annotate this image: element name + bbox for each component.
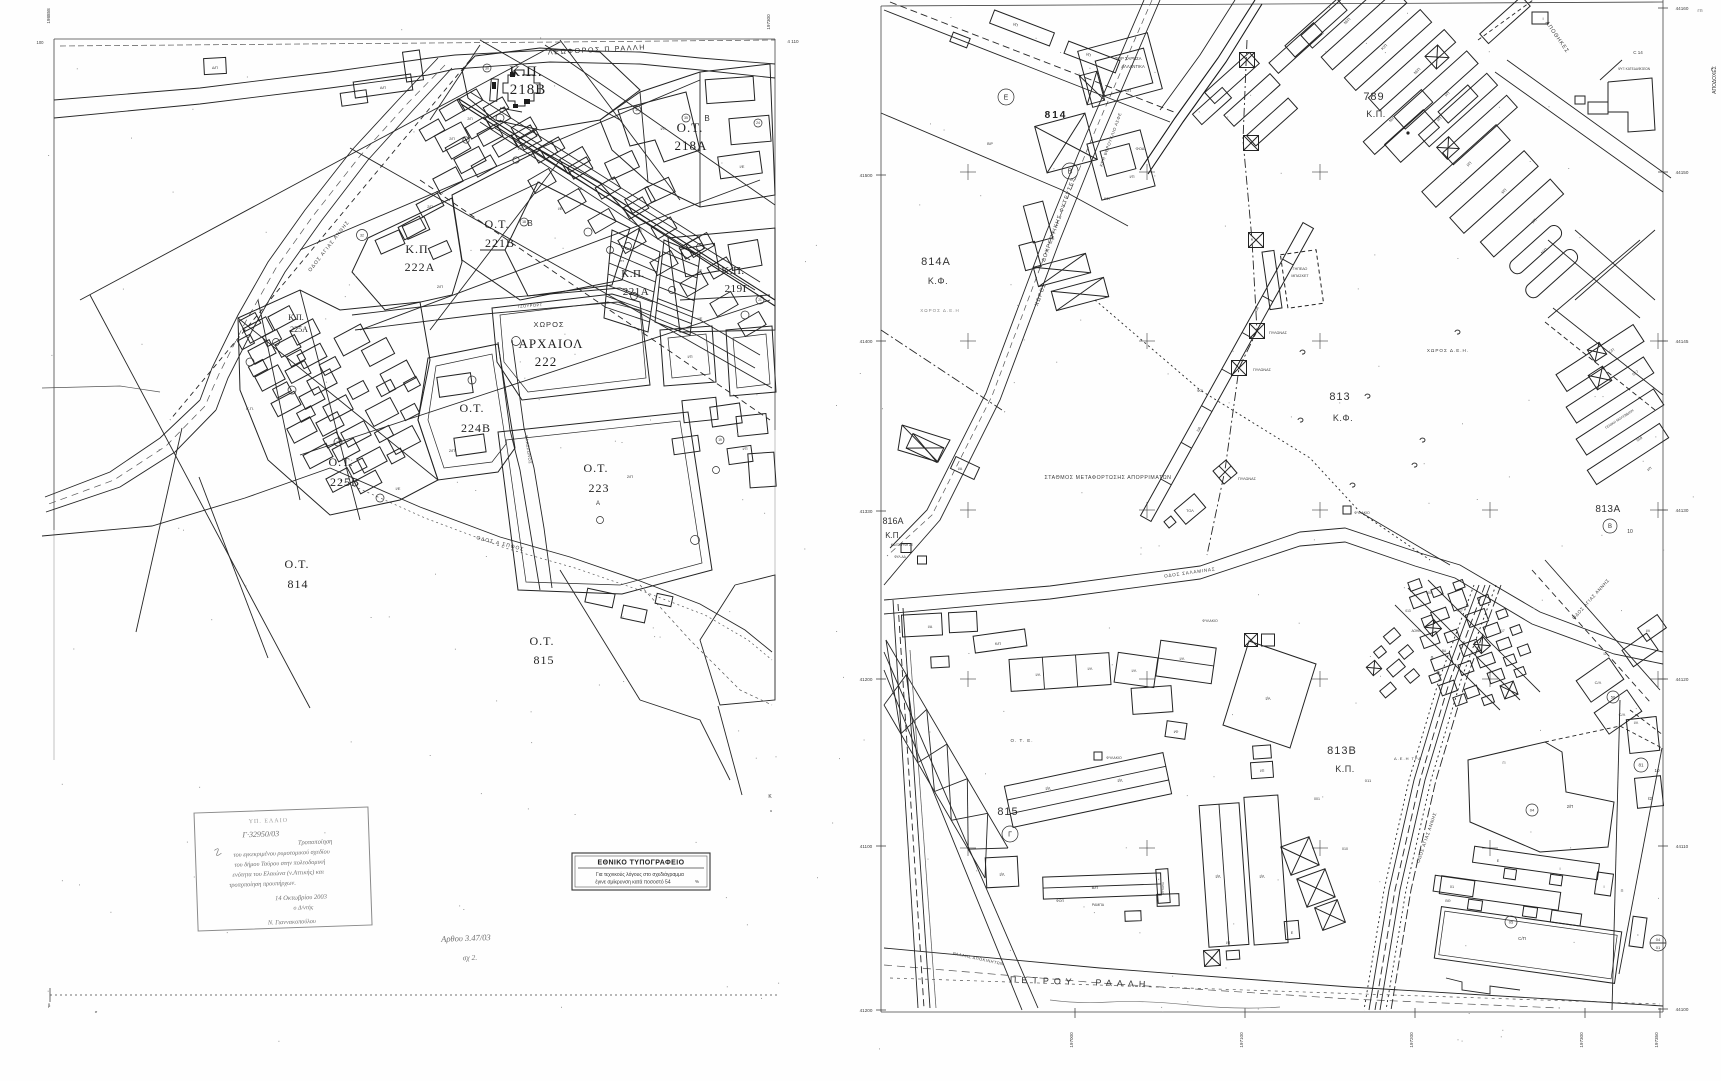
svg-text:Ι/Π: Ι/Π [1050, 237, 1055, 241]
svg-text:Κ.Π.: Κ.Π. [1335, 764, 1355, 774]
svg-text:Ι/Α: Ι/Α [928, 625, 933, 629]
svg-text:ΦΟΡ ΣΑΡΝΣΑ: ΦΟΡ ΣΑΡΝΣΑ [1114, 56, 1141, 61]
svg-text:011: 011 [1365, 778, 1372, 783]
svg-text:ΠΥΛΩΝΑΣ: ΠΥΛΩΝΑΣ [1238, 477, 1257, 481]
svg-text:ΤΟΛ: ΤΟΛ [1186, 509, 1194, 513]
svg-text:Κ/Π: Κ/Π [995, 642, 1002, 646]
svg-text:41100: 41100 [860, 844, 873, 849]
svg-text:2/Π: 2/Π [437, 284, 443, 289]
svg-text:Κ.Π.: Κ.Π. [246, 406, 254, 411]
svg-text:224B: 224B [461, 421, 491, 435]
svg-text:B: B [704, 114, 709, 123]
svg-text:44145: 44145 [1676, 339, 1689, 344]
svg-text:197100: 197100 [1239, 1032, 1244, 1048]
svg-text:O. T. E.: O. T. E. [1011, 738, 1034, 743]
svg-text:Ι/Λ: Ι/Λ [1045, 786, 1050, 791]
svg-text:41400: 41400 [860, 339, 873, 344]
svg-text:ΑΡΧΑΙΟΛ: ΑΡΧΑΙΟΛ [519, 336, 584, 351]
svg-text:ΣΤΑΘΜΟΣ ΜΕΤΑΦΟΡΤΩΣΗΣ ΑΠΟΡΡΙΜ: ΣΤΑΘΜΟΣ ΜΕΤΑΦΟΡΤΩΣΗΣ ΑΠΟΡΡΙΜΑΤΩΝ [1044, 475, 1171, 481]
svg-text:B: B [527, 219, 532, 228]
svg-text:44120: 44120 [1676, 677, 1689, 682]
svg-text:2/Π: 2/Π [467, 117, 473, 121]
svg-text:Ι/Λ: Ι/Λ [1036, 672, 1041, 677]
svg-text:223: 223 [589, 481, 610, 495]
svg-text:Ι/Ε: Ι/Ε [740, 164, 745, 169]
svg-text:ΒΙΡ: ΒΙΡ [987, 142, 993, 146]
svg-text:197300: 197300 [766, 14, 771, 30]
svg-text:O.T.: O.T. [677, 120, 704, 135]
svg-text:Ι/Π: Ι/Π [1260, 769, 1265, 773]
svg-text:Β/Π: Β/Π [1092, 885, 1099, 890]
svg-text:017: 017 [1499, 629, 1505, 633]
svg-text:218A: 218A [675, 138, 708, 153]
svg-text:C/Λ: C/Λ [1595, 680, 1602, 685]
svg-text:Κ.Φ.: Κ.Φ. [1333, 413, 1353, 423]
svg-text:789: 789 [1363, 91, 1384, 103]
svg-text:Ι/Ε: Ι/Ε [558, 207, 563, 211]
svg-text:2/Π: 2/Π [449, 448, 455, 453]
svg-text:41200: 41200 [860, 1008, 873, 1013]
svg-text:18: 18 [522, 220, 526, 224]
svg-text:41500: 41500 [860, 173, 873, 178]
svg-text:K.Π.: K.Π. [621, 268, 644, 280]
svg-text:Ι/Φ: Ι/Φ [1174, 730, 1179, 734]
svg-text:ΑΠΟΔΟΧΕ̿Σ: ΑΠΟΔΟΧΕ̿Σ [1710, 66, 1718, 94]
svg-text:017: 017 [1457, 609, 1463, 613]
svg-text:24: 24 [756, 121, 760, 125]
svg-text:O.T.: O.T. [284, 557, 309, 571]
svg-text:44160: 44160 [1676, 6, 1689, 11]
svg-text:Ι/Λ: Ι/Λ [1132, 668, 1137, 673]
svg-text:41200: 41200 [860, 677, 873, 682]
svg-text:04: 04 [1656, 937, 1661, 942]
svg-text:197200: 197200 [1409, 1032, 1414, 1048]
svg-text:υ: υ [770, 808, 772, 813]
svg-text:Ι/Ε: Ι/Ε [578, 187, 583, 191]
svg-text:Γ: Γ [1008, 832, 1012, 839]
svg-text:Ι/Π: Ι/Π [1226, 941, 1231, 945]
svg-text:ΠΥΛΩΝΑΣ: ΠΥΛΩΝΑΣ [1269, 331, 1288, 335]
svg-text:21: 21 [758, 298, 762, 302]
svg-text:ℓ2: ℓ2 [1648, 796, 1652, 801]
svg-text:%: % [695, 879, 699, 884]
svg-text:ΧΩΡΟΣ Δ.Ε.Η: ΧΩΡΟΣ Δ.Ε.Η [920, 308, 959, 313]
svg-text:44130: 44130 [1676, 508, 1689, 513]
svg-text:O.T.: O.T. [484, 217, 509, 231]
svg-text:K.Π.: K.Π. [509, 64, 542, 80]
svg-text:Ε: Ε [1004, 95, 1009, 102]
svg-text:Ε: Ε [1497, 859, 1500, 863]
svg-text:O.T.: O.T. [529, 634, 554, 648]
svg-text:815: 815 [997, 806, 1018, 818]
svg-text:ΦΟΠ: ΦΟΠ [1056, 899, 1065, 903]
svg-text:2/Π: 2/Π [427, 205, 433, 209]
svg-text:ΓΠ: ΓΠ [1697, 8, 1702, 13]
svg-text:198858: 198858 [46, 8, 51, 24]
svg-text:ΓΗΠΕΔΟ: ΓΗΠΕΔΟ [1293, 267, 1308, 271]
svg-text:Π: Π [1621, 889, 1624, 893]
svg-text:Ι/Α: Ι/Α [958, 467, 963, 471]
svg-text:ΚΦΙ: ΚΦΙ [1104, 197, 1110, 201]
svg-text:Κ.Π.: Κ.Π. [1366, 109, 1386, 119]
svg-text:ΦΥΛΑΚΙΟ: ΦΥΛΑΚΙΟ [1202, 619, 1218, 623]
svg-text:ΒΘ: ΒΘ [1445, 899, 1450, 903]
svg-text:ΔΟΗΒ: ΔΟΗΒ [1412, 629, 1421, 633]
svg-text:Για τεχνικούς λόγους στο σχεδι: Για τεχνικούς λόγους στο σχεδιάγραμμα [596, 871, 684, 878]
svg-text:πτ: πτ [620, 259, 624, 263]
svg-text:04: 04 [1530, 807, 1535, 812]
svg-text:σχ 2.: σχ 2. [463, 953, 478, 963]
svg-text:100: 100 [37, 40, 45, 45]
svg-text:004: 004 [1427, 591, 1433, 595]
svg-text:225A: 225A [290, 325, 308, 334]
svg-text:197000: 197000 [1069, 1032, 1074, 1048]
svg-text:O.T.: O.T. [583, 461, 608, 475]
svg-text:Ι/Π: Ι/Π [660, 126, 665, 131]
svg-text:813: 813 [1329, 391, 1350, 403]
svg-text:Ι/Λ: Ι/Λ [1634, 721, 1639, 725]
svg-text:2/Π: 2/Π [449, 137, 455, 141]
svg-text:814: 814 [288, 577, 309, 591]
svg-text:ΦΟΙ: ΦΟΙ [1197, 389, 1204, 393]
svg-text:C/Π: C/Π [1518, 936, 1526, 941]
svg-text:221A: 221A [623, 286, 649, 298]
svg-text:K.Π.: K.Π. [405, 242, 432, 256]
svg-text:Ι/Α: Ι/Α [1265, 696, 1270, 701]
svg-text:2/Π: 2/Π [1567, 804, 1574, 809]
svg-text:ΨΥΞ ΚΑΤΕΔΑΦΙΣΕΩΝ: ΨΥΞ ΚΑΤΕΔΑΦΙΣΕΩΝ [1618, 67, 1651, 71]
svg-text:19: 19 [718, 438, 722, 442]
svg-text:44110: 44110 [1676, 844, 1689, 849]
svg-text:ΜΠΑΣΚΕΤ: ΜΠΑΣΚΕΤ [1291, 274, 1309, 278]
svg-text:ΧΩΡΟΣ: ΧΩΡΟΣ [533, 320, 564, 329]
svg-text:Ι: Ι [1559, 867, 1560, 871]
svg-text:Ι: Ι [1542, 16, 1543, 21]
svg-text:Κ.Φ.: Κ.Φ. [928, 276, 948, 286]
svg-text:4 110: 4 110 [787, 39, 799, 44]
svg-text:814A: 814A [921, 256, 951, 268]
svg-text:10: 10 [1654, 768, 1660, 773]
svg-text:44150: 44150 [1676, 170, 1689, 175]
svg-text:05: 05 [1509, 919, 1514, 924]
svg-text:ΦΥΛΑΚΙΟ: ΦΥΛΑΚΙΟ [1106, 756, 1122, 760]
svg-text:813B: 813B [1327, 745, 1357, 757]
svg-text:Ε: Ε [1291, 931, 1294, 935]
svg-text:41330: 41330 [860, 509, 873, 514]
svg-text:Ι/Λ: Ι/Λ [1088, 666, 1093, 671]
svg-text:ο Δ/ντής: ο Δ/ντής [293, 905, 314, 912]
svg-text:Αρθου 3.47/03: Αρθου 3.47/03 [440, 932, 491, 944]
svg-text:Ι/Ε: Ι/Ε [396, 486, 401, 491]
svg-text:ΠΥΛΩΝΑΣ: ΠΥΛΩΝΑΣ [1253, 368, 1272, 372]
svg-text:Ι/Λ: Ι/Λ [1180, 656, 1185, 661]
svg-text:C 14: C 14 [1633, 50, 1643, 55]
svg-text:222A: 222A [405, 260, 436, 274]
svg-text:ΚΑΛΤΟΡΝΗ ΣΕ: ΚΑΛΤΟΡΝΗ ΣΕ [891, 543, 913, 547]
svg-text:Ι/Ε: Ι/Ε [638, 229, 643, 233]
svg-text:81: 81 [1638, 763, 1644, 768]
svg-text:ΕΘΝΙΚΟ ΤΥΠΟΓΡΑΦΕΙΟ: ΕΘΝΙΚΟ ΤΥΠΟΓΡΑΦΕΙΟ [598, 860, 685, 867]
svg-text:814: 814 [1045, 110, 1068, 121]
svg-text:Ι/Π: Ι/Π [518, 147, 523, 151]
svg-text:197300: 197300 [1579, 1032, 1584, 1048]
svg-text:Ι/Λ: Ι/Λ [1215, 874, 1220, 879]
svg-text:221B: 221B [485, 236, 515, 250]
svg-text:Γ·32950/03: Γ·32950/03 [241, 829, 279, 839]
svg-text:Κ/Π: Κ/Π [1125, 88, 1132, 93]
svg-text:17: 17 [635, 108, 639, 112]
svg-text:Ι/Ε: Ι/Ε [698, 316, 703, 321]
svg-text:013: 013 [1405, 609, 1411, 613]
svg-text:Β: Β [1608, 524, 1612, 530]
svg-text:Β: Β [1068, 169, 1073, 176]
svg-text:Ι/Π: Ι/Π [687, 354, 692, 359]
svg-text:Ι/Λ: Ι/Λ [1646, 629, 1651, 633]
svg-text:ΓΙ: ΓΙ [1503, 761, 1506, 765]
svg-text:010: 010 [1342, 847, 1348, 851]
svg-text:ΦΟΔ: ΦΟΔ [1136, 146, 1145, 151]
svg-text:001: 001 [1314, 797, 1320, 801]
svg-text:218B: 218B [510, 82, 547, 98]
svg-text:222: 222 [535, 354, 558, 369]
svg-text:Ι2: Ι2 [1604, 652, 1607, 656]
svg-text:197350: 197350 [1654, 1032, 1659, 1048]
svg-text:Δ/Π: Δ/Π [212, 66, 218, 70]
svg-text:44100: 44100 [1676, 1007, 1689, 1012]
svg-text:815: 815 [534, 653, 555, 667]
svg-text:έγινε σμίκρυνση κατά ποσοστό: έγινε σμίκρυνση κατά ποσοστό 54 [595, 879, 670, 886]
svg-text:Ι: Ι [1603, 885, 1604, 889]
svg-text:816A: 816A [882, 516, 903, 526]
svg-text:Δ.Ε.Η ΤΡΑ: Δ.Ε.Η ΤΡΑ [1394, 756, 1422, 761]
svg-text:Ι/Λ: Ι/Λ [999, 872, 1004, 877]
svg-text:50: 50 [1611, 694, 1616, 699]
svg-text:Α: Α [596, 501, 600, 507]
svg-text:Κ.Π.: Κ.Π. [885, 531, 901, 540]
svg-text:Ι/Π: Ι/Π [1129, 174, 1134, 179]
svg-text:O.T.: O.T. [328, 455, 353, 469]
svg-text:10: 10 [1627, 529, 1633, 535]
svg-text:K.Π.: K.Π. [288, 313, 304, 322]
svg-text:01: 01 [1450, 885, 1454, 889]
svg-text:Ι/Λ: Ι/Λ [1117, 778, 1122, 783]
svg-text:β: β [48, 1003, 51, 1008]
svg-text:ΑΛΛΑΝΤΙΚΑ: ΑΛΛΑΝΤΙΚΑ [1121, 64, 1145, 69]
svg-text:ΡΑΜΠΑ: ΡΑΜΠΑ [1092, 903, 1105, 907]
svg-text:ΖΥΓΑΡΙΑ: ΖΥΓΑΡΙΑ [1161, 882, 1165, 894]
svg-text:ΦΥΛ.ΑΔ: ΦΥΛ.ΑΔ [894, 555, 906, 559]
svg-text:Ι/Λ: Ι/Λ [1259, 874, 1264, 879]
svg-text:Α/Π: Α/Π [380, 86, 387, 90]
svg-text:ΧΩΡΟΣ Δ.Ε.Η.: ΧΩΡΟΣ Δ.Ε.Η. [1427, 348, 1469, 353]
svg-text:Τροποποίηση: Τροποποίηση [298, 838, 333, 846]
svg-text:O.T.: O.T. [459, 401, 484, 415]
svg-text:32: 32 [360, 233, 364, 237]
svg-text:813A: 813A [1595, 504, 1620, 515]
svg-text:30: 30 [485, 66, 489, 70]
svg-text:ι: ι [1638, 932, 1639, 937]
svg-text:225B: 225B [330, 475, 360, 489]
svg-text:2/Π: 2/Π [627, 474, 633, 479]
svg-text:ΦΥΛΑΚΙΟ: ΦΥΛΑΚΙΟ [1354, 511, 1370, 515]
svg-text:01: 01 [1656, 945, 1661, 950]
